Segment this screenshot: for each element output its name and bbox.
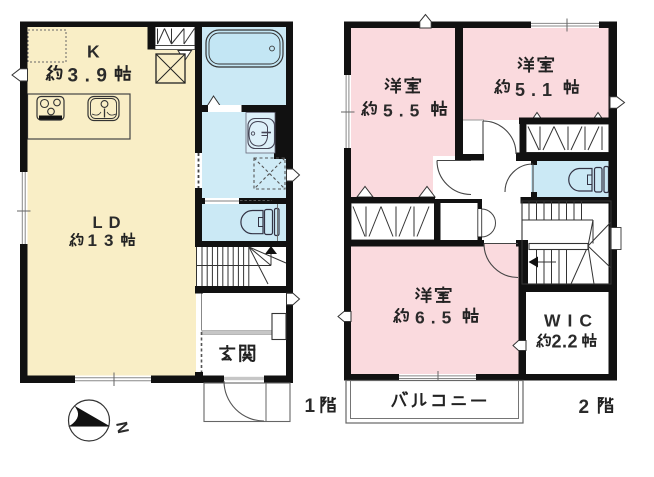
- svg-text:3.9: 3.9: [68, 66, 114, 87]
- svg-text:6.5: 6.5: [415, 308, 457, 328]
- svg-text:5.1: 5.1: [515, 80, 558, 100]
- svg-text:K: K: [87, 42, 100, 62]
- svg-text:5.5: 5.5: [383, 101, 425, 121]
- svg-text:1: 1: [305, 396, 316, 417]
- svg-text:2.2: 2.2: [552, 332, 579, 352]
- svg-text:WIC: WIC: [544, 311, 599, 331]
- svg-text:2: 2: [579, 397, 590, 418]
- svg-text:13: 13: [88, 231, 121, 250]
- svg-text:LD: LD: [93, 214, 127, 232]
